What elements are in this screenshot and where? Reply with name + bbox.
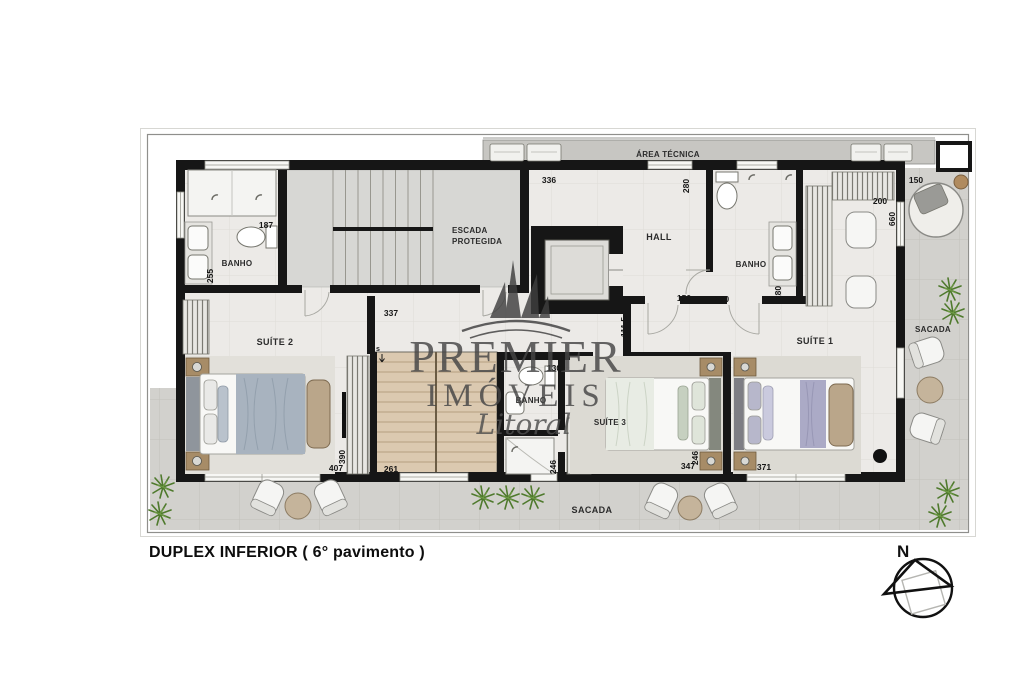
sink	[773, 226, 792, 250]
dimension: 280	[681, 179, 691, 193]
room-label-area-tecnica: ÁREA TÉCNICA	[636, 150, 700, 159]
dimension: 660	[887, 212, 897, 226]
dimension: 150	[677, 293, 691, 303]
balcony-table	[285, 493, 311, 519]
structural-column	[873, 449, 887, 463]
dimension: 280	[773, 286, 783, 300]
room-label-sacada-right: SACADA	[915, 325, 951, 334]
north-compass: N	[884, 542, 952, 617]
sink	[773, 256, 792, 280]
room-label-hall: HALL	[646, 232, 672, 242]
dimension: 337	[384, 308, 398, 318]
room-label-suite1: SUÍTE 1	[797, 336, 834, 346]
room-label-banho-left: BANHO	[222, 259, 253, 268]
room-label-sacada-bottom: SACADA	[572, 505, 613, 515]
shower-suite3	[506, 438, 554, 474]
dimension: 246	[690, 451, 700, 465]
tv-panel	[342, 392, 346, 438]
room-label-escada-1: ESCADA	[452, 226, 488, 235]
north-label: N	[897, 542, 909, 561]
dimension: 200	[715, 294, 729, 304]
rooftop-box	[938, 143, 970, 170]
watermark-premier: PREMIER	[409, 331, 622, 382]
pouf	[846, 212, 876, 248]
dimension: 261	[384, 464, 398, 474]
dimension: 371	[757, 462, 771, 472]
closet-rack	[183, 300, 209, 354]
page-title: DUPLEX INFERIOR ( 6° pavimento )	[149, 544, 425, 561]
room-label-escada-2: PROTEGIDA	[452, 237, 502, 246]
dimension: 150	[909, 175, 923, 185]
closet-rack	[806, 186, 832, 306]
suite2-bed-set	[185, 356, 346, 474]
balcony-table	[917, 377, 943, 403]
room-label-banho-right: BANHO	[736, 260, 767, 269]
toilet	[716, 172, 738, 209]
sink	[188, 226, 208, 250]
dimension: 187	[259, 220, 273, 230]
room-label-suite3: SUÍTE 3	[594, 418, 627, 427]
floor-plan-page: ÁREA TÉCNICA ESCADA PROTEGIDA HALL BANHO…	[0, 0, 1024, 682]
room-label-suite2: SUÍTE 2	[257, 337, 294, 347]
headboard	[734, 378, 744, 450]
side-table	[954, 175, 968, 189]
headboard	[709, 378, 721, 450]
dimension: 200	[873, 196, 887, 206]
floor-plan-drawing: ÁREA TÉCNICA ESCADA PROTEGIDA HALL BANHO…	[0, 0, 1024, 682]
balcony-table	[678, 496, 702, 520]
elevator	[531, 226, 623, 314]
watermark-litoral: Litoral	[476, 408, 572, 441]
closet-rack	[347, 356, 369, 474]
stair-direction-label: s	[376, 346, 380, 353]
dimension: 390	[337, 450, 347, 464]
dimension: 255	[205, 269, 215, 283]
dimension: 246	[548, 460, 558, 474]
dimension: 336	[542, 175, 556, 185]
pouf	[846, 276, 876, 308]
bed-bench	[829, 384, 853, 446]
headboard	[186, 377, 200, 451]
bed-bench	[307, 380, 330, 448]
